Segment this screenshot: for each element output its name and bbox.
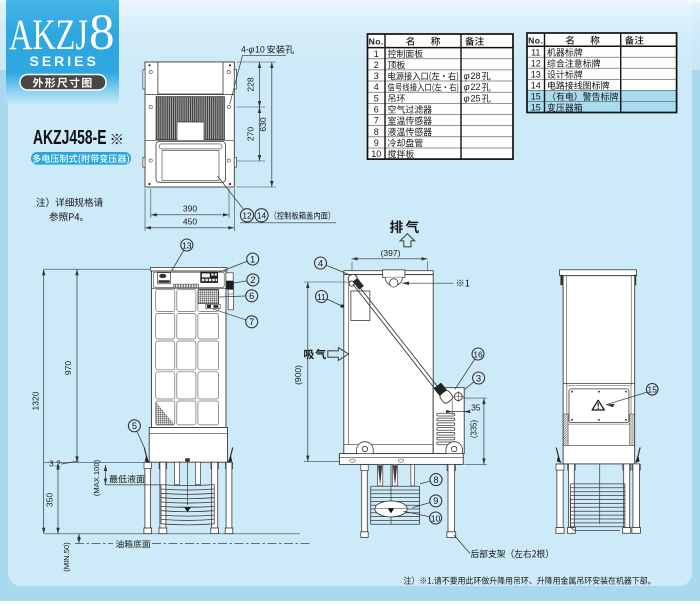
svg-text:SERIES: SERIES (30, 53, 99, 69)
svg-text:15: 15 (648, 385, 658, 395)
svg-text:1320: 1320 (31, 391, 41, 410)
svg-text:390: 390 (183, 204, 197, 214)
svg-text:35: 35 (471, 402, 481, 412)
svg-text:10: 10 (371, 149, 381, 159)
svg-text:16: 16 (473, 349, 483, 359)
svg-text:8: 8 (374, 127, 379, 137)
svg-text:13: 13 (531, 69, 541, 79)
svg-text:2: 2 (374, 60, 379, 70)
svg-text:228: 228 (246, 77, 256, 91)
svg-text:1: 1 (374, 49, 379, 59)
svg-text:4: 4 (318, 258, 323, 268)
svg-text:14: 14 (531, 80, 541, 90)
svg-text:(397): (397) (381, 248, 401, 258)
svg-text:12: 12 (242, 211, 252, 221)
svg-text:1: 1 (250, 254, 255, 264)
svg-text:φ: φ (464, 82, 470, 93)
svg-text:φ: φ (249, 45, 255, 55)
svg-text:(900): (900) (293, 365, 303, 385)
svg-text:13: 13 (182, 240, 192, 250)
svg-text:5: 5 (374, 93, 379, 103)
svg-text:3: 3 (374, 71, 379, 81)
svg-text:11: 11 (317, 292, 326, 302)
svg-text:6: 6 (249, 291, 254, 301)
svg-text:270: 270 (246, 127, 256, 141)
svg-text:970: 970 (63, 361, 73, 375)
svg-text:No.: No. (528, 35, 543, 45)
svg-text:9: 9 (433, 496, 438, 506)
svg-text:3.2: 3.2 (49, 459, 61, 469)
svg-text:10: 10 (255, 45, 265, 55)
svg-text:8: 8 (433, 475, 438, 485)
svg-text:7: 7 (374, 116, 379, 126)
svg-text:AKZJ: AKZJ (9, 12, 88, 59)
svg-text:3: 3 (476, 373, 481, 383)
svg-text:630: 630 (258, 117, 268, 131)
svg-text:(335): (335) (469, 419, 478, 438)
svg-text:10: 10 (431, 513, 441, 523)
svg-text:2: 2 (250, 275, 255, 285)
svg-text:12: 12 (531, 58, 541, 68)
svg-text:(MIN.50): (MIN.50) (62, 542, 71, 572)
svg-text:450: 450 (183, 217, 197, 227)
svg-text:6: 6 (374, 105, 379, 115)
svg-text:14: 14 (257, 211, 267, 221)
svg-text:350: 350 (45, 493, 55, 507)
svg-text:No.: No. (369, 36, 384, 46)
svg-text:(MAX.100): (MAX.100) (92, 459, 101, 496)
svg-text:AKZJ458-E: AKZJ458-E (33, 127, 107, 149)
svg-text:4: 4 (374, 82, 379, 92)
svg-text:15: 15 (531, 103, 541, 113)
svg-text:φ: φ (464, 71, 470, 82)
svg-text:9: 9 (374, 138, 379, 148)
svg-text:25: 25 (471, 93, 481, 103)
svg-text:11: 11 (531, 47, 540, 57)
svg-text:7: 7 (249, 317, 254, 327)
svg-text:28: 28 (471, 71, 481, 81)
svg-text:15: 15 (531, 92, 541, 102)
svg-text:5: 5 (132, 421, 137, 431)
svg-text:φ: φ (464, 93, 470, 104)
svg-text:22: 22 (471, 82, 481, 92)
